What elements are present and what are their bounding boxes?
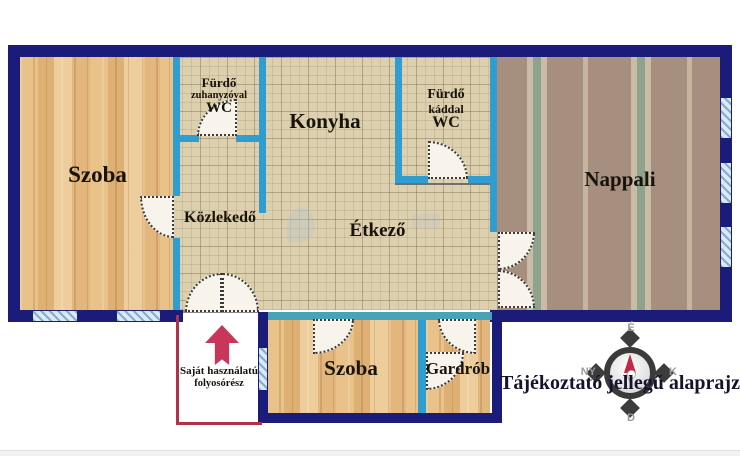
room-label-nappali: Nappali — [550, 168, 690, 190]
wall-tub-bath-left — [395, 57, 402, 183]
room-label-furdo-zuhanyzoval: Fürdő zuhanyzóval WC — [178, 76, 260, 116]
window — [721, 98, 731, 138]
private-corridor-outline-bottom — [176, 422, 262, 425]
private-corridor-label-line: Saját használatú — [174, 366, 264, 378]
wall-shower-bath-bottom-left — [173, 135, 199, 142]
wall-etkezo-nappali — [490, 57, 497, 232]
room-label-gardrob: Gardrób — [420, 360, 496, 378]
wall-szoba-corridor-lower — [173, 238, 180, 310]
window — [117, 311, 160, 321]
wall-annex-bottom — [258, 413, 502, 423]
compass-label-north: É — [624, 322, 638, 334]
plan-caption: Tájékoztató jellegű alaprajz — [500, 372, 740, 395]
room-label-line: WC — [405, 115, 487, 132]
compass-label-south: D — [624, 412, 638, 424]
wall-shower-bath-bottom-right — [236, 135, 266, 142]
page-bottom-strip — [0, 450, 740, 456]
room-label-furdo-kaddal: Fürdő káddal WC — [405, 88, 487, 132]
room-label-line: Fürdő — [405, 88, 487, 103]
window — [721, 163, 731, 203]
wall-outer-bottom-right — [490, 310, 732, 322]
room-label-kozlekedo: Közlekedő — [172, 210, 268, 227]
room-label-konyha: Konyha — [265, 110, 385, 132]
room-label-line: WC — [178, 101, 260, 117]
room-label-szoba-bottom: Szoba — [295, 357, 407, 379]
private-corridor-label: Saját használatú folyosórész — [174, 366, 264, 389]
window — [721, 227, 731, 267]
watermark — [287, 208, 315, 242]
wall-tub-bath-bottom-left — [395, 176, 428, 183]
room-label-etkezo: Étkező — [330, 221, 425, 241]
room-label-line: Fürdő — [178, 76, 260, 90]
wall-outer-left — [8, 45, 20, 322]
private-corridor-label-line: folyosórész — [174, 378, 264, 389]
wall-outer-top — [8, 45, 732, 57]
room-label-line: zuhanyzóval — [178, 90, 260, 101]
wall-shadow-line — [395, 183, 497, 185]
room-label-szoba-left: Szoba — [40, 163, 155, 187]
window — [33, 311, 77, 321]
